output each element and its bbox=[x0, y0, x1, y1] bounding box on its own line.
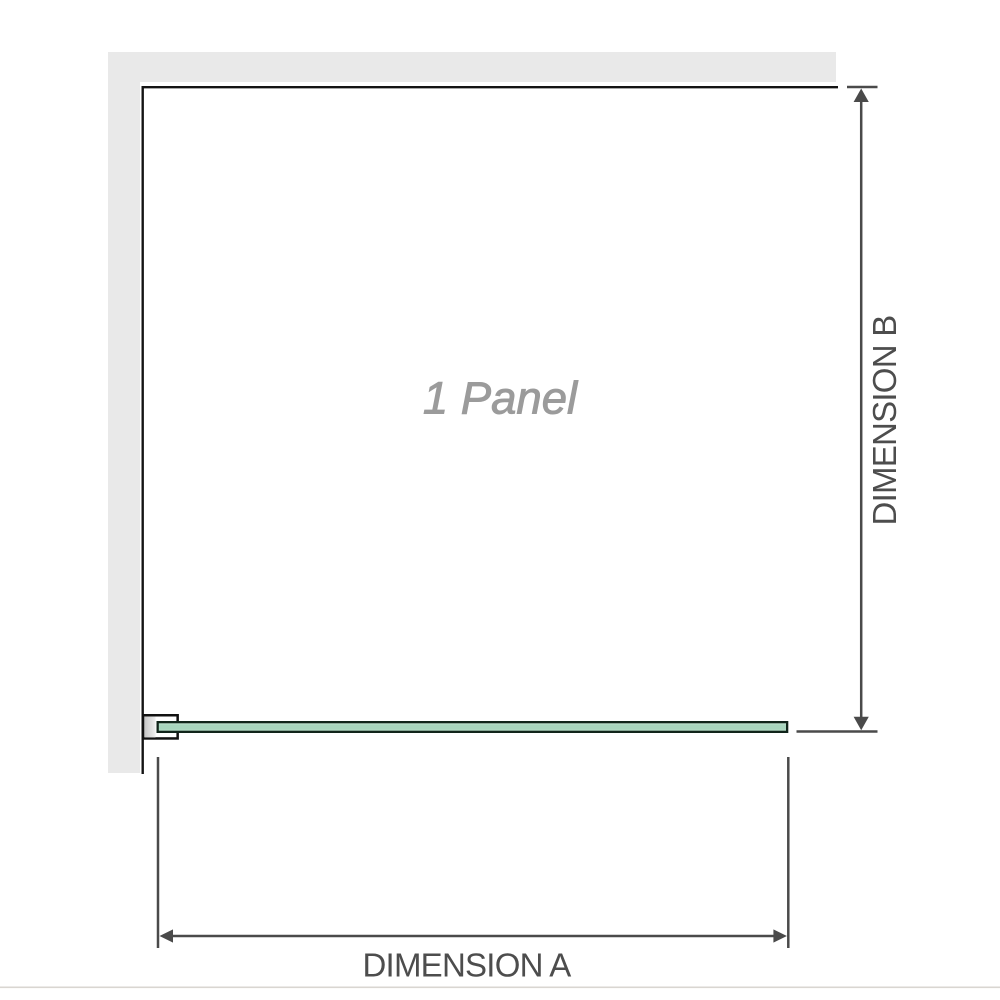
svg-text:1 Panel: 1 Panel bbox=[423, 373, 579, 424]
svg-text:DIMENSION A: DIMENSION A bbox=[362, 947, 571, 984]
svg-text:DIMENSION B: DIMENSION B bbox=[866, 316, 903, 526]
